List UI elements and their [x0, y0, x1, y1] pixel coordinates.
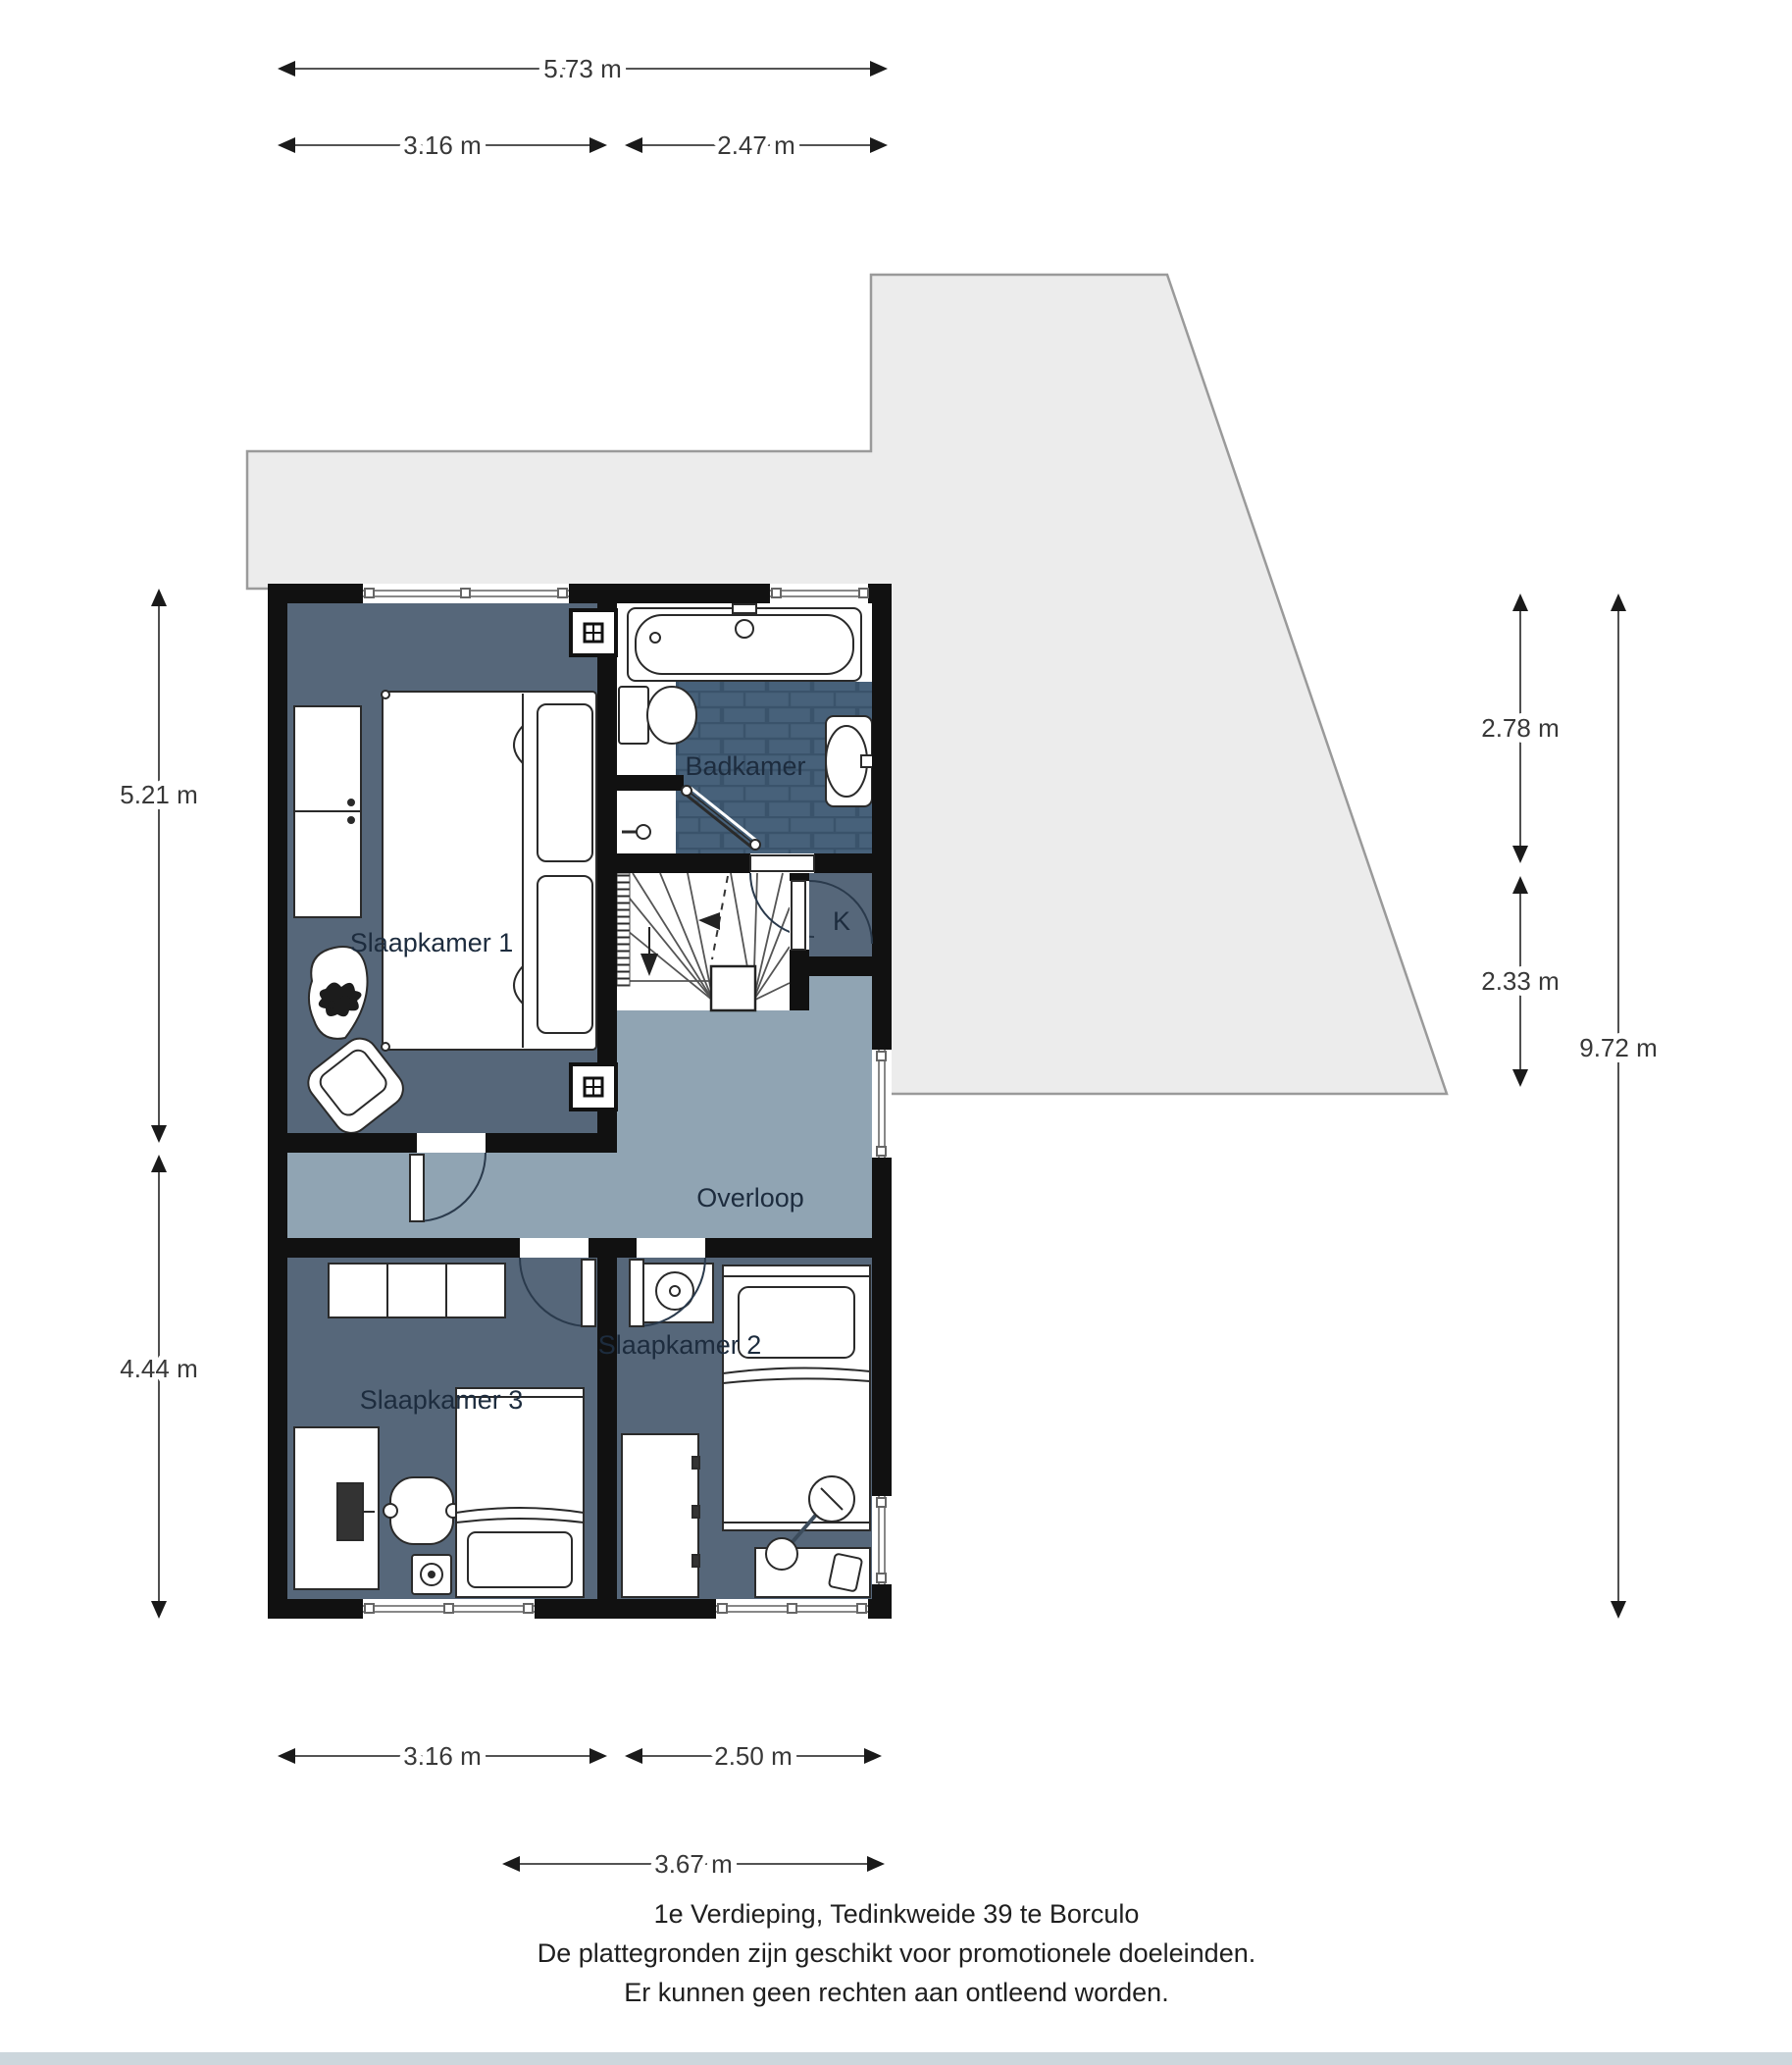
caption-disclaimer-1: De plattegronden zijn geschikt voor prom…	[538, 1938, 1255, 1968]
dim-label-top-right: 2.47 m	[717, 130, 795, 160]
stair-rail-hatch	[617, 873, 630, 986]
label-kast: K	[833, 906, 850, 936]
dim-label-right-middle: 2.33 m	[1481, 966, 1560, 996]
label-slaapkamer1: Slaapkamer 1	[350, 928, 514, 957]
window-overloop-right	[872, 1050, 892, 1158]
caption-title: 1e Verdieping, Tedinkweide 39 te Borculo	[654, 1899, 1140, 1929]
dim-label-right-upper: 2.78 m	[1481, 713, 1560, 743]
dim-left-lower	[151, 1155, 167, 1619]
vent-box-icon-bottom	[571, 1064, 616, 1110]
toilet	[619, 687, 696, 744]
label-overloop: Overloop	[696, 1183, 804, 1213]
window-sk1	[363, 584, 569, 603]
window-sk2-right	[872, 1496, 892, 1584]
dim-label-bottom-right: 2.50 m	[714, 1741, 793, 1771]
label-slaapkamer3: Slaapkamer 3	[360, 1385, 524, 1415]
dim-label-bottom-left: 3.16 m	[403, 1741, 482, 1771]
window-sk3	[363, 1599, 535, 1619]
window-badkamer	[770, 584, 868, 603]
dim-label-left-upper: 5.21 m	[120, 780, 198, 809]
caption-disclaimer-2: Er kunnen geen rechten aan ontleend word…	[624, 1978, 1168, 2007]
dim-label-top-total: 5.73 m	[543, 54, 622, 83]
double-bed	[382, 691, 596, 1051]
sink	[826, 716, 873, 806]
dim-label-bottom-total: 3.67 m	[654, 1849, 733, 1879]
dim-label-top-left: 3.16 m	[403, 130, 482, 160]
office-chair	[384, 1477, 460, 1544]
sideboard	[329, 1264, 505, 1317]
desk-with-computer	[294, 1427, 379, 1589]
nightstand-with-lamp	[637, 1264, 713, 1322]
dresser-desk	[622, 1434, 699, 1597]
dim-label-right-total: 9.72 m	[1579, 1033, 1658, 1062]
floorplan-drawing: Slaapkamer 1 Badkamer K Overloop Slaapka…	[0, 0, 1792, 2065]
single-bed-sk3	[456, 1388, 584, 1597]
speaker-box	[412, 1555, 451, 1594]
footer-strip	[0, 2052, 1792, 2065]
floorplan-page: Slaapkamer 1 Badkamer K Overloop Slaapka…	[0, 0, 1792, 2065]
dim-left-upper	[151, 589, 167, 1143]
bathtub	[628, 604, 861, 681]
vent-box-icon-top	[571, 610, 616, 655]
label-slaapkamer2: Slaapkamer 2	[598, 1330, 762, 1360]
dim-label-left-lower: 4.44 m	[120, 1354, 198, 1383]
wardrobe	[294, 706, 361, 917]
window-sk2	[716, 1599, 868, 1619]
dim-right-total	[1611, 594, 1626, 1619]
label-badkamer: Badkamer	[685, 751, 805, 781]
